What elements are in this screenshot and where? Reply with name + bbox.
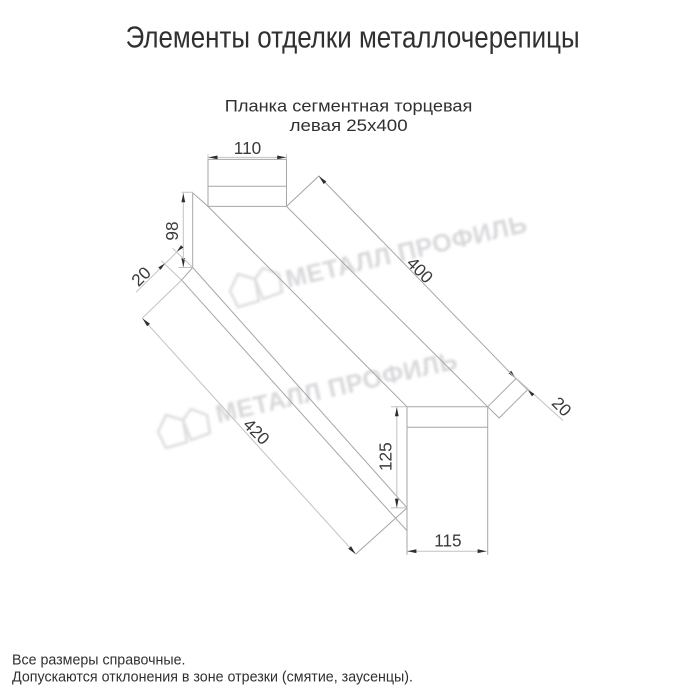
- svg-text:Все размеры справочные.: Все размеры справочные.: [12, 653, 186, 669]
- svg-text:98: 98: [162, 221, 182, 240]
- svg-text:110: 110: [234, 138, 261, 158]
- svg-text:125: 125: [376, 442, 396, 471]
- svg-text:115: 115: [434, 530, 461, 550]
- svg-text:левая 25x400: левая 25x400: [290, 116, 408, 135]
- svg-text:Планка сегментная торцевая: Планка сегментная торцевая: [225, 96, 473, 115]
- svg-text:Допускаются отклонения в зоне: Допускаются отклонения в зоне отрезки (с…: [12, 669, 413, 685]
- svg-text:Элементы отделки металлочерепи: Элементы отделки металлочерепицы: [126, 21, 580, 55]
